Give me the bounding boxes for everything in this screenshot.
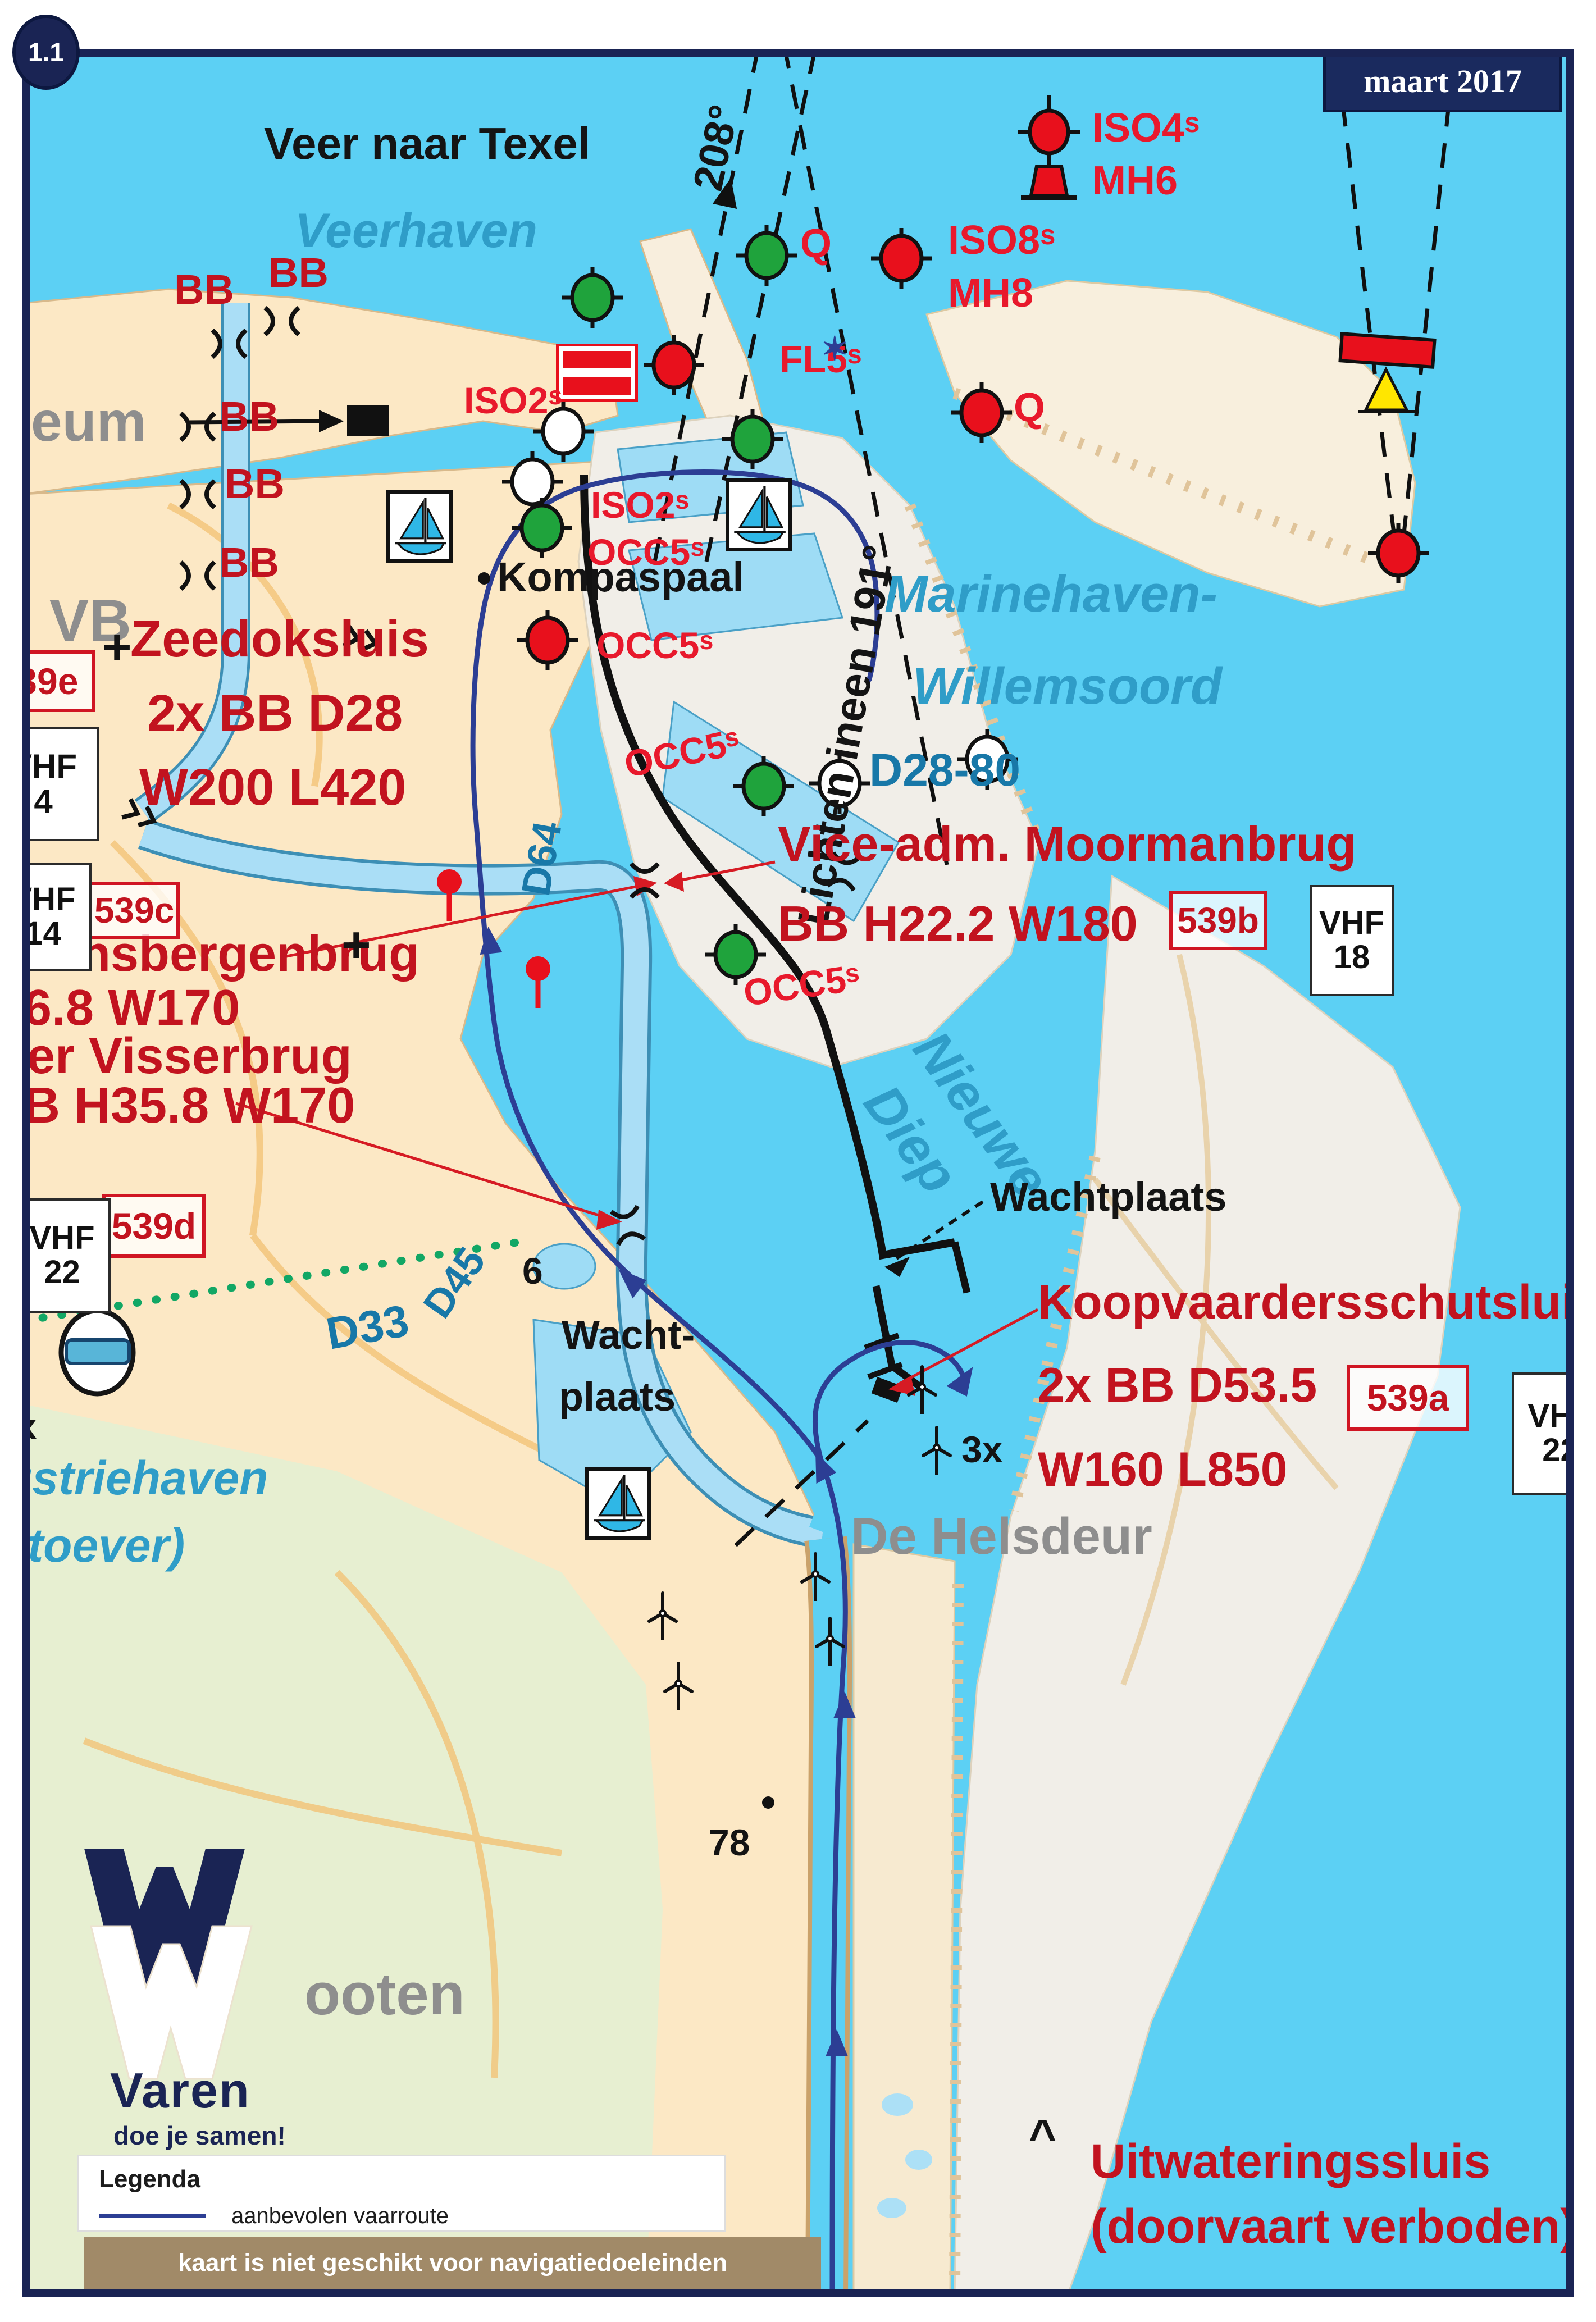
legend-route-label: aanbevolen vaarroute [231,2204,449,2229]
legend-title: Legenda [99,2165,200,2193]
chart-number: 1.1 [28,37,64,67]
chart-date-box: maart 2017 [1323,57,1562,112]
chart-world: Veer naar TexelVeerhaven208°Lichten inee… [30,57,1566,2289]
chart-date: maart 2017 [1364,62,1522,100]
legend-disclaimer: kaart is niet geschikt voor navigatiedoe… [178,2249,727,2277]
route-line-sample [99,2214,206,2218]
chart-number-badge: 1.1 [12,15,80,90]
logo-varen: Varen [110,2062,250,2119]
logo-layer [30,57,1566,2289]
logo-wave-white [91,1926,252,2079]
chart-viewport[interactable]: Veer naar TexelVeerhaven208°Lichten inee… [30,57,1566,2289]
legend-row: aanbevolen vaarroute [99,2204,449,2229]
nautical-chart-den-helder: Veer naar TexelVeerhaven208°Lichten inee… [0,0,1596,2322]
legend-box: Legenda aanbevolen vaarroute [79,2156,724,2230]
logo-tagline: doe je samen! [113,2120,286,2151]
legend-disclaimer-band: kaart is niet geschikt voor navigatiedoe… [84,2237,821,2289]
